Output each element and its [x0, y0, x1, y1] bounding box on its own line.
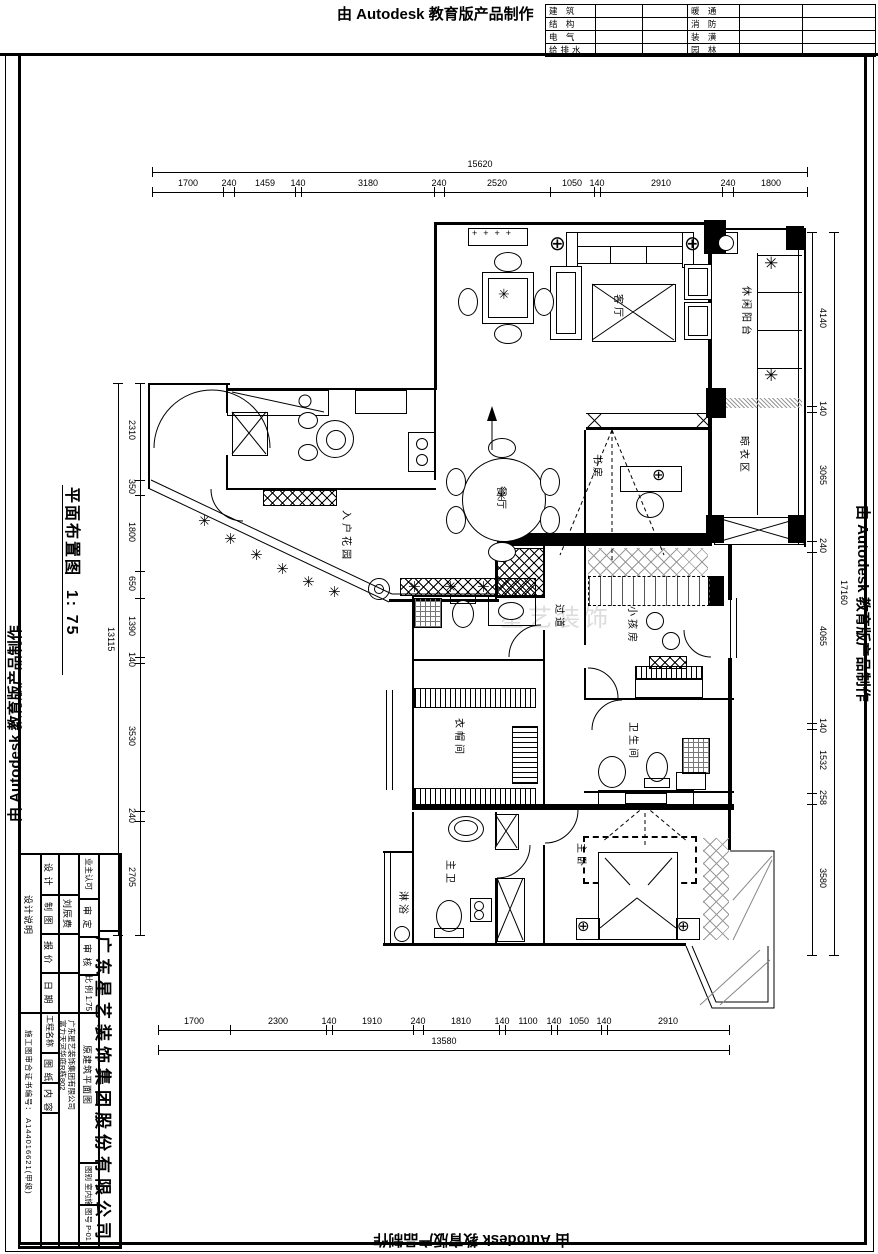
tb-quote: 报 价 [42, 941, 55, 965]
tb-owner-approval: 业主认可 [83, 858, 94, 890]
sink-drain [299, 395, 311, 407]
tb-content-label: 内 容 [42, 1089, 55, 1113]
tb-project-label: 工程名称 [44, 1015, 55, 1047]
tb-draft-value: 刘辰费 [61, 899, 74, 929]
tb-cert: 施工图审合证书编号： A144016621(甲级) [23, 1030, 34, 1195]
tb-number: 图号 P-01 [83, 1208, 94, 1241]
drawing-sheet: 由 Autodesk 教育版产品制作 由 Autodesk 教育版产品制作 由 … [0, 0, 878, 1254]
door-arc [545, 810, 578, 843]
tb-sheet-label: 图 纸 [42, 1059, 55, 1083]
tb-date: 日 期 [42, 981, 55, 1005]
tb-company: 广东星艺装饰集团股份有限公司 [92, 936, 117, 1244]
door-arc [509, 625, 541, 657]
door-arc [497, 845, 530, 878]
tv-projection [602, 806, 688, 846]
tb-design: 设 计 [42, 863, 55, 887]
window-x [714, 517, 804, 543]
rug-x [592, 284, 674, 340]
elevator-x [232, 412, 266, 454]
door-arc [154, 390, 212, 448]
bed-linen-lines [600, 858, 676, 928]
counter-line [232, 392, 324, 412]
plan-linework [0, 0, 878, 1254]
tb-content-value: 原建筑平面图 [81, 1045, 94, 1105]
tb-approved: 审 定 [81, 906, 94, 930]
north-arrow-head [487, 406, 497, 421]
door-arc [592, 700, 622, 730]
tb-category: 图别 室内施 [83, 1166, 94, 1206]
door-arc [588, 668, 618, 698]
light-projection [560, 430, 664, 560]
cabinet-x [495, 814, 523, 940]
tb-draft: 制 图 [42, 902, 55, 926]
garden-wall-diagonal [148, 488, 389, 602]
stone-hatch [700, 856, 772, 1005]
garden-wall-diagonal-inner [151, 480, 392, 594]
curtain-arc [684, 630, 711, 657]
tb-company-sub: 广东星艺装饰集团有限公司 [66, 1020, 77, 1110]
tb-design-notes: 设计说明 [22, 895, 35, 935]
device-x [588, 414, 710, 427]
